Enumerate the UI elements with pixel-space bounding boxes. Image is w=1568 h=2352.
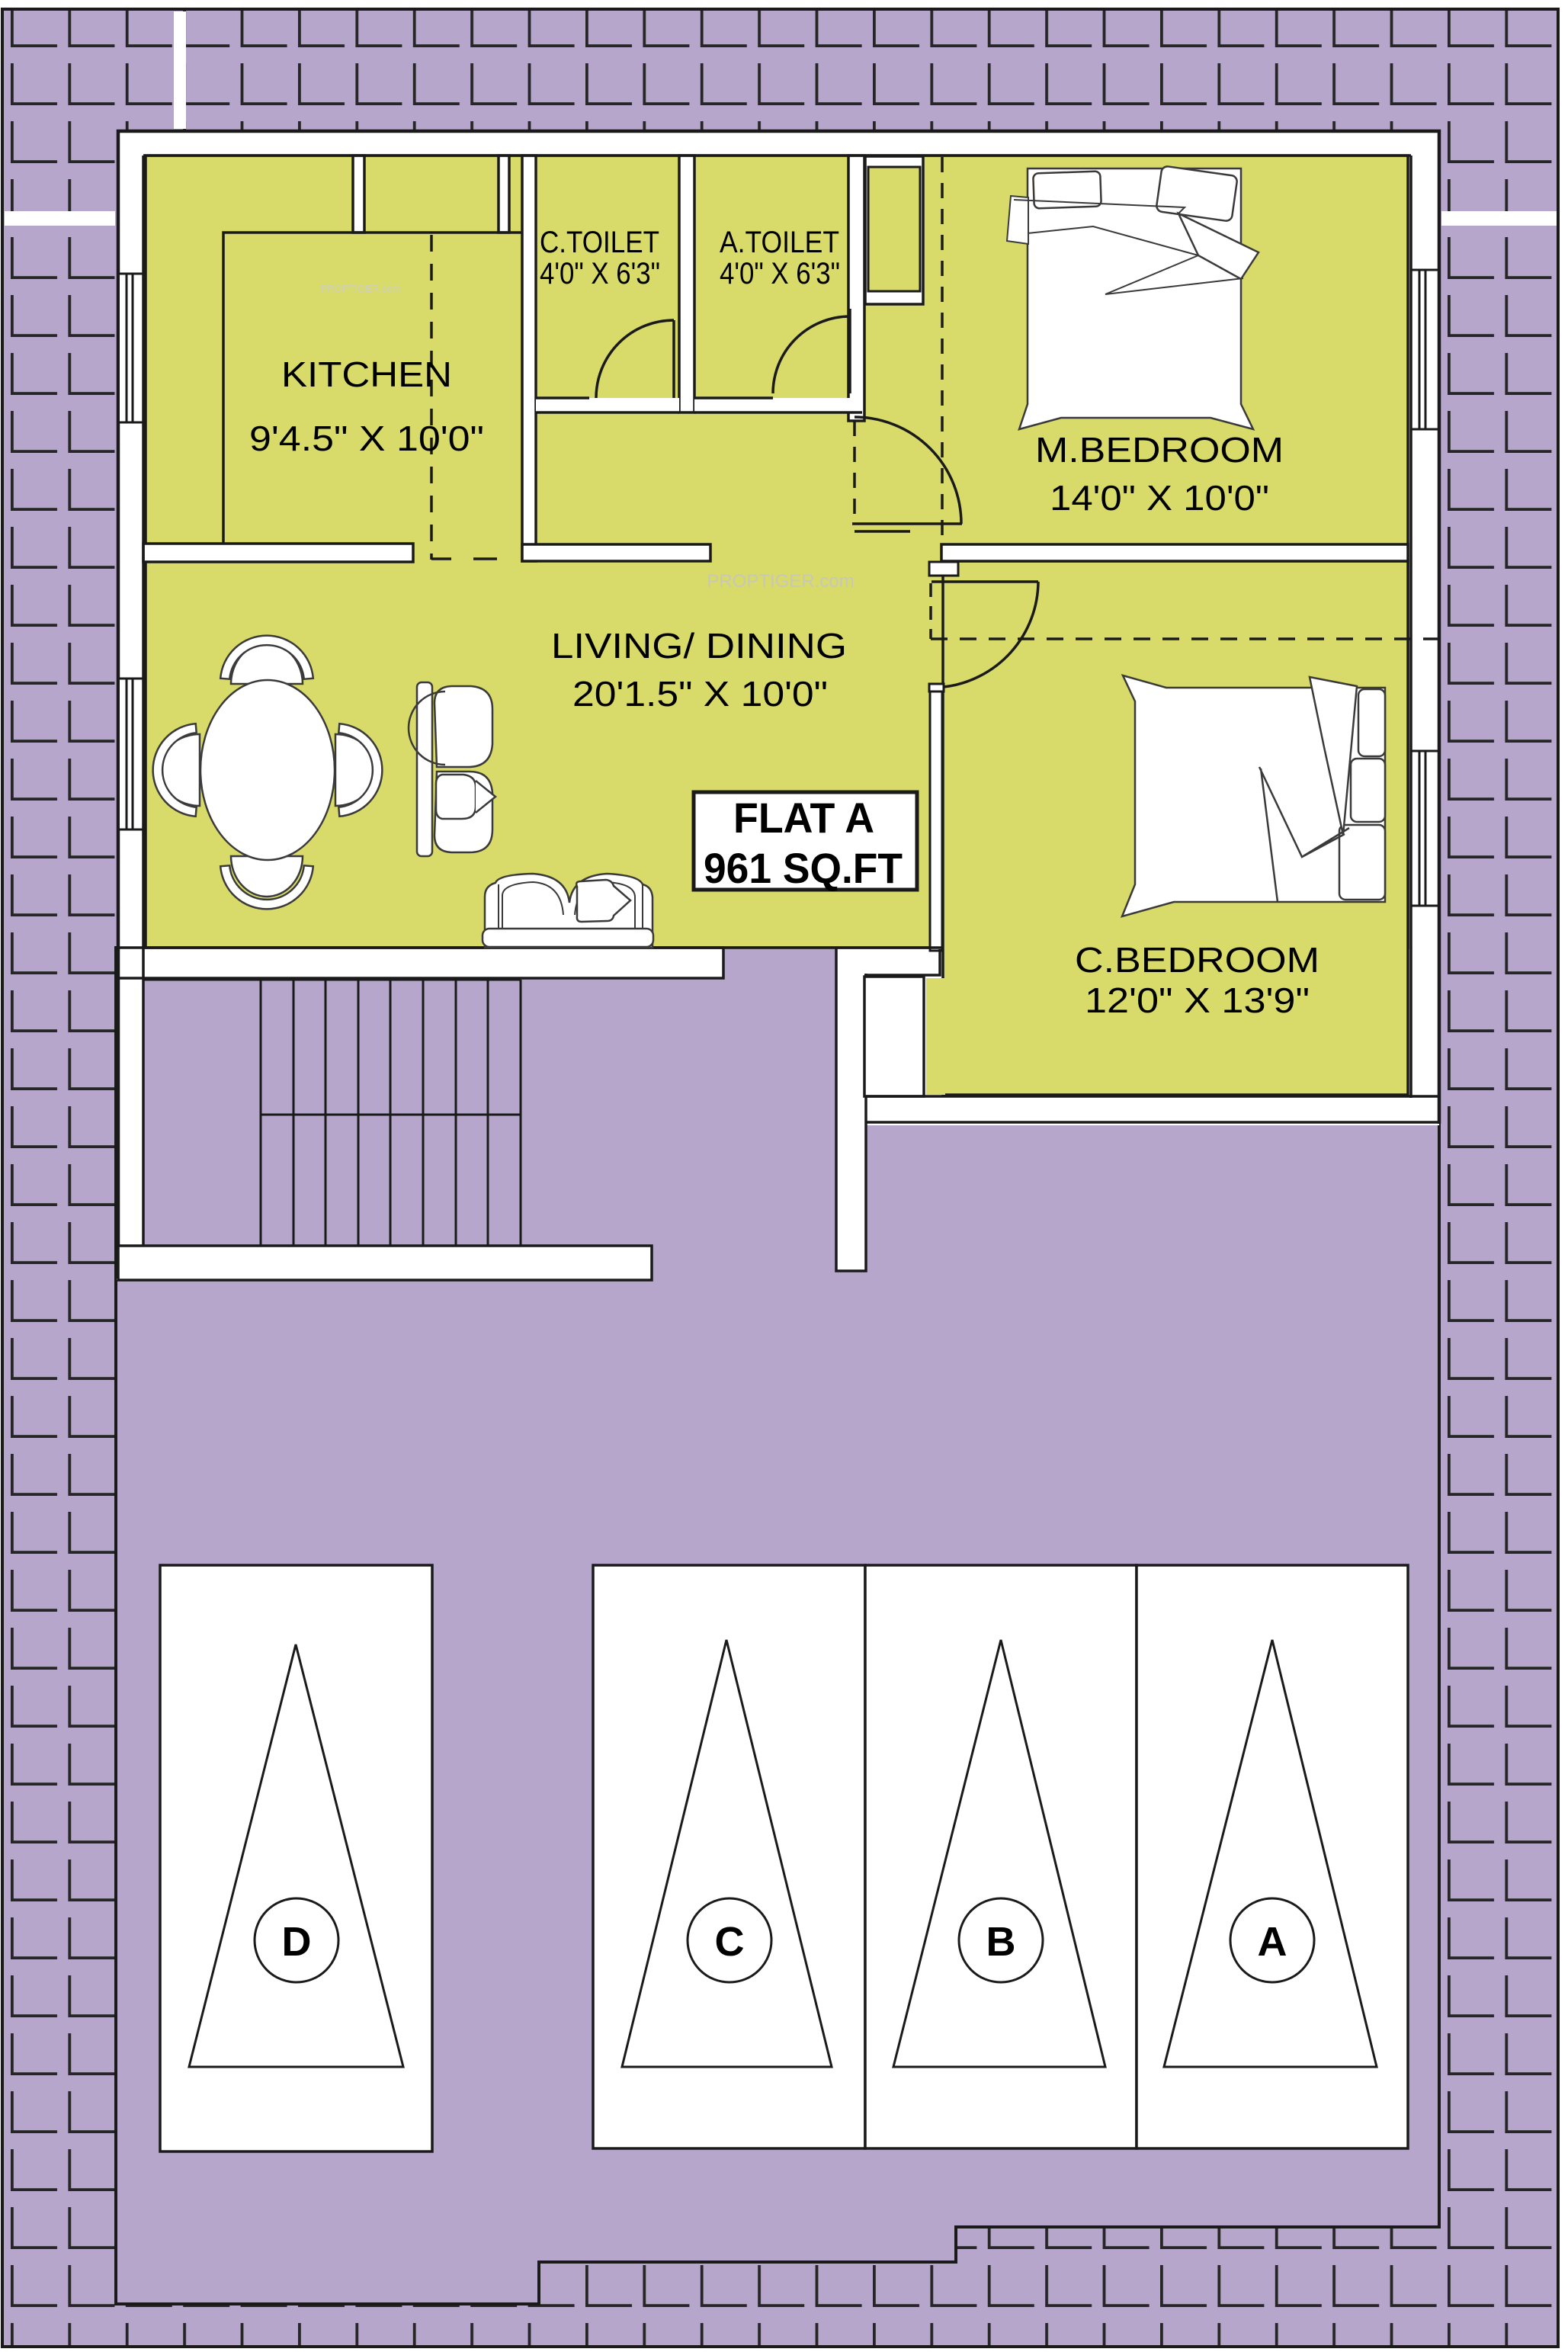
svg-text:4'0" X 6'3": 4'0" X 6'3" [540, 257, 660, 290]
svg-text:PROPTIGER.com: PROPTIGER.com [707, 571, 854, 592]
svg-text:12'0" X 13'9": 12'0" X 13'9" [1085, 980, 1310, 1020]
svg-text:4'0" X 6'3": 4'0" X 6'3" [720, 257, 840, 290]
svg-text:LIVING/ DINING: LIVING/ DINING [551, 626, 847, 666]
svg-text:9'4.5" X 10'0": 9'4.5" X 10'0" [249, 419, 484, 458]
svg-text:FLAT A: FLAT A [733, 794, 874, 842]
svg-text:20'1.5" X 10'0": 20'1.5" X 10'0" [572, 674, 828, 714]
svg-text:A.TOILET: A.TOILET [720, 226, 839, 259]
svg-text:PROPTIGER.com: PROPTIGER.com [321, 283, 401, 294]
svg-text:C: C [715, 1919, 745, 1965]
svg-text:B: B [986, 1919, 1016, 1965]
svg-text:A: A [1258, 1919, 1287, 1965]
svg-text:961 SQ.FT: 961 SQ.FT [704, 844, 903, 892]
svg-text:C.TOILET: C.TOILET [540, 226, 659, 259]
svg-text:C.BEDROOM: C.BEDROOM [1075, 940, 1319, 980]
svg-text:14'0" X 10'0": 14'0" X 10'0" [1050, 478, 1269, 518]
svg-text:D: D [282, 1919, 312, 1965]
svg-text:M.BEDROOM: M.BEDROOM [1035, 430, 1284, 470]
svg-text:KITCHEN: KITCHEN [281, 355, 452, 394]
